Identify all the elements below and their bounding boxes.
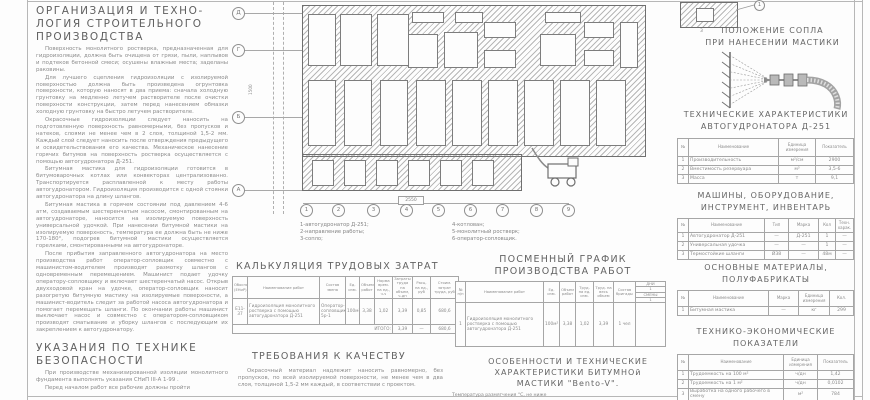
tech-char-row: 3 Масса т 9,1 [678, 175, 854, 184]
tech-char-cell: 1 [678, 157, 689, 166]
plan-opening [408, 34, 438, 68]
calc-total-value: — [413, 325, 431, 334]
tech-econ-cell: 2 [678, 380, 689, 389]
machines-cell: Универсальная удочка [689, 242, 765, 251]
axis-letter-circle: Г [232, 44, 245, 57]
machines-cell: Автогудронатор Д-251 [689, 233, 765, 242]
tech-char-cell: 3,5-6 [816, 166, 854, 175]
machines-cell: Термостойкие шланги [689, 251, 765, 260]
plan-opening [584, 50, 614, 66]
schedule-cell: 3,39 [594, 303, 614, 347]
calc-title: КАЛЬКУЛЯЦИЯ ТРУДОВЫХ ЗАТРАТ [236, 261, 439, 273]
schedule-cell: Гидроизоляция монолитного ростверка с по… [466, 303, 544, 347]
legend-item: 1-автогудронатор Д-251; [300, 222, 369, 229]
plan-opening [344, 160, 366, 186]
axis-letter-circle: Д [232, 7, 245, 20]
materials-header: Кол. [830, 291, 854, 307]
plan-opening [416, 80, 446, 146]
tech-char-row: 1 Производительность м²/см 2900 [678, 157, 854, 166]
machines-row: 1 Автогудронатор Д-251 — Д-251 1 — [678, 233, 854, 242]
calc-cell: 3,39 [393, 299, 413, 325]
plan-opening [308, 14, 336, 66]
calc-data-row: Е11-37 Гидроизоляция монолитного роствер… [233, 299, 459, 325]
tech-econ-cell: 3 [678, 389, 689, 400]
calc-header: Ед. изм. [346, 277, 360, 299]
axis-letter-circle: Б [232, 111, 245, 124]
schedule-header: Труд. на весь объем [594, 282, 614, 303]
dimension-label: 2550 [398, 196, 424, 205]
axis-number-circle: 7 [496, 204, 509, 217]
calc-total-row: ИТОГО: 3,39 — 680,6 [233, 325, 459, 334]
tech-econ-header: Показатель [818, 355, 854, 371]
plan-opening [376, 160, 398, 186]
machines-cell: 1 [819, 242, 836, 251]
machines-cell: 2 [678, 242, 689, 251]
quality-title: ТРЕБОВАНИЯ К КАЧЕСТВУ [252, 351, 406, 363]
machines-header: Тип [765, 219, 789, 233]
schedule-data-row: 1 Гидроизоляция монолитного ростверка с … [456, 303, 666, 347]
org-paragraph: Окрасочные гидроизоляции следует наносит… [36, 117, 228, 165]
axis-number-circle: 5 [432, 204, 445, 217]
tech-char-header-row: № Наименование Единица измерения Показат… [678, 139, 854, 157]
legend-item: 3-сопло; [300, 236, 369, 243]
plan-opening [380, 80, 408, 146]
org-title-line2: ЛОГИЯ СТРОИТЕЛЬНОГО [36, 18, 203, 31]
tech-econ-cell: ч/дн [784, 380, 818, 389]
tech-char-header: Единица измерения [779, 139, 816, 157]
mastic-title-line2: ХАРАКТЕРИСТИКИ БИТУМНОй [468, 368, 668, 379]
calc-header: Расц. на ед., руб [413, 277, 431, 299]
schedule-header: Ед. изм. [544, 282, 560, 303]
frame-right-outer-line [862, 0, 863, 400]
axis-number-circle: 1 [300, 204, 313, 217]
materials-cell: кг [799, 307, 830, 316]
machines-cell: 48м [819, 251, 836, 260]
nozzle-spray-drawing [700, 50, 850, 110]
calc-total-value: 3,39 [393, 325, 413, 334]
tech-char-title-line2: АВТОГУДРОНАТОРА Д-251 [678, 122, 854, 133]
calc-cell: 3,38 [360, 299, 375, 325]
schedule-gantt-cell [636, 303, 666, 347]
plan-opening [377, 14, 409, 66]
tech-econ-header-row: № Наименование Единица измерения Показат… [678, 355, 854, 371]
materials-title-line2: ПОЛУФАБРИКАТЫ [678, 275, 854, 286]
schedule-title-line1: ПОСМЕННЫЙ ГРАФИК [463, 254, 663, 266]
plan-opening [560, 80, 590, 146]
calc-header-row: Обоснование (ЕНиР) Наименование работ Со… [233, 277, 459, 299]
safety-paragraph: При производстве механизированной изоляц… [36, 370, 228, 384]
machines-cell: — [789, 251, 819, 260]
section-detail-opening [696, 8, 714, 22]
machines-cell: — [765, 242, 789, 251]
plan-opening [596, 80, 626, 146]
org-body: Поверхность монолитного ростверка, предн… [36, 46, 228, 340]
machines-cell: — [836, 233, 854, 242]
materials-table: № Наименование Марка Единица измерения К… [677, 290, 854, 316]
machines-header: Кол [819, 219, 836, 233]
machines-header-row: № Наименование Тип Марка Кол Техн. харак… [678, 219, 854, 233]
tech-char-cell: Масса [689, 175, 779, 184]
plan-opening [540, 34, 576, 66]
tech-char-cell: 2 [678, 166, 689, 175]
drawing-sheet: ОРГАНИЗАЦИЯ И ТЕХНО- ЛОГИЯ СТРОИТЕЛЬНОГО… [0, 0, 870, 400]
tech-econ-title-line2: ПОКАЗАТЕЛИ [678, 339, 854, 350]
org-paragraph: Для лучшего сцепления гидроизоляции с из… [36, 75, 228, 116]
calc-cell: 100м² [346, 299, 360, 325]
schedule-cell: 3,38 [560, 303, 576, 347]
plan-opening [344, 80, 372, 146]
org-paragraph: После прибытия заправленного автогудрона… [36, 251, 228, 334]
plan-opening [412, 12, 444, 23]
machines-header: № [678, 219, 689, 233]
plan-opening [488, 80, 518, 146]
schedule-cell: 1 чел [614, 303, 636, 347]
schedule-days-header: ДНИ 1 СМЕНЫ 1 [636, 282, 666, 303]
axis-number-circle: 3 [367, 204, 380, 217]
materials-header: Марка [769, 291, 799, 307]
plan-opening [408, 160, 430, 186]
machines-row: 2 Универсальная удочка — — 1 — [678, 242, 854, 251]
calc-cell: 1,02 [375, 299, 393, 325]
safety-title-line1: УКАЗАНИЯ ПО ТЕХНИКЕ [36, 342, 197, 355]
mastic-title-line3: МАСТИКИ "Вento-V". [468, 379, 668, 390]
schedule-header: Наименование работ [466, 282, 544, 303]
machines-cell: 1 [819, 233, 836, 242]
plan-opening [308, 80, 336, 146]
quality-body: Окрасочный материал надлежит наносить ра… [238, 368, 443, 396]
materials-cell: 299 [830, 307, 854, 316]
legend-item: 5-монолитный ростверк; [452, 229, 520, 236]
materials-header: Единица измерения [799, 291, 830, 307]
tech-char-header: Наименование [689, 139, 779, 157]
excavation-dashed-line [273, 2, 274, 214]
calc-header: Затраты труда на объем, ч-дн [393, 277, 413, 299]
detail-label-circle: 1 [754, 0, 765, 11]
schedule-cell: 1 [456, 303, 466, 347]
safety-body: При производстве механизированной изоляц… [36, 370, 228, 396]
plan-opening [584, 22, 614, 38]
legend-right: 4-котлован; 5-монолитный ростверк; 6-опе… [452, 222, 520, 244]
schedule-header: № п/п [456, 282, 466, 303]
schedule-header: Объем работ [560, 282, 576, 303]
legend-item: 2-направление работы; [300, 229, 369, 236]
plan-opening [340, 14, 372, 66]
frame-right-line [854, 0, 855, 400]
schedule-header-row: № п/п Наименование работ Ед. изм. Объем … [456, 282, 666, 303]
tech-econ-row: 2 Трудоемкость на 1 м² ч/дн 0,0102 [678, 380, 854, 389]
materials-row: 1 Битумная мастика — кг 299 [678, 307, 854, 316]
schedule-table: № п/п Наименование работ Ед. изм. Объем … [455, 281, 666, 347]
tech-econ-header: Единица измерения [784, 355, 818, 371]
plan-opening [545, 12, 581, 23]
calc-cell: 0,85 [413, 299, 431, 325]
axis-line [244, 190, 302, 191]
tech-char-cell: 2900 [816, 157, 854, 166]
tech-char-cell: м³ [779, 166, 816, 175]
tech-econ-cell: м² [784, 389, 818, 400]
tech-char-row: 2 Вместимость резервуара м³ 3,5-6 [678, 166, 854, 175]
axis-letter-circle: А [232, 184, 245, 197]
machines-cell: — [836, 251, 854, 260]
safety-title-line2: БЕЗОПАСНОСТИ [36, 355, 144, 368]
materials-header: Наименование [689, 291, 769, 307]
axis-line [244, 117, 302, 118]
excavation-dashed-line [283, 2, 284, 214]
tech-char-table: № Наименование Единица измерения Показат… [677, 138, 854, 184]
machines-cell: Д-251 [789, 233, 819, 242]
machines-table: № Наименование Тип Марка Кол Техн. харак… [677, 218, 854, 260]
tech-char-cell: т [779, 175, 816, 184]
safety-paragraph: Перед началом работ все рабочие должны п… [36, 385, 228, 392]
machines-header: Наименование [689, 219, 765, 233]
tech-char-header: № [678, 139, 689, 157]
machines-title-line2: ИНСТРУМЕНТ, ИНВЕНТАРЬ [678, 203, 854, 214]
mastic-title-line1: ОСОБЕННОСТИ И ТЕХНИЧЕСКИЕ [468, 357, 668, 368]
materials-header: № [678, 291, 689, 307]
axis-number-circle: 2 [332, 204, 345, 217]
tech-econ-cell: Трудоемкость на 1 м² [689, 380, 784, 389]
mastic-first-line: Температура размягчения °С, не ниже [452, 392, 546, 399]
calc-header: Норма врем. на ед., ч-ч [375, 277, 393, 299]
materials-header-row: № Наименование Марка Единица измерения К… [678, 291, 854, 307]
machines-cell: — [836, 242, 854, 251]
calc-header: Обоснование (ЕНиР) [233, 277, 248, 299]
nozzle-title-line2: ПРИ НАНЕСЕНИИ МАСТИКИ [690, 38, 855, 49]
tech-econ-table: № Наименование Единица измерения Показат… [677, 354, 854, 400]
machines-cell: 1 [678, 233, 689, 242]
machines-row: 3 Термостойкие шланги Ø38 — 48м — [678, 251, 854, 260]
axis-number-circle: 4 [400, 204, 413, 217]
schedule-header: Труд. на ед. изм. [576, 282, 594, 303]
tech-econ-cell: 0,0102 [818, 380, 854, 389]
materials-title-line1: ОСНОВНЫЕ МАТЕРИАЛЫ, [678, 263, 854, 274]
tech-econ-cell: ч/дн [784, 371, 818, 380]
frame-left-line [27, 0, 28, 400]
machines-cell: 3 [678, 251, 689, 260]
axis-number-circle: 8 [530, 204, 543, 217]
schedule-title-line2: ПРОИЗВОДСТВА РАБОТ [463, 266, 663, 278]
machines-header: Техн. харак. [836, 219, 854, 233]
plan-opening [472, 160, 494, 186]
tech-econ-cell: 784 [818, 389, 854, 400]
tech-econ-cell: 1,42 [818, 371, 854, 380]
tech-char-header: Показатель [816, 139, 854, 157]
org-title-line1: ОРГАНИЗАЦИЯ И ТЕХНО- [36, 5, 204, 18]
tech-char-cell: 3 [678, 175, 689, 184]
axis-line [244, 13, 302, 14]
quality-text: Окрасочный материал надлежит наносить ра… [238, 368, 443, 389]
machines-title-line1: МАШИНЫ, ОБОРУДОВАНИЕ, [678, 191, 854, 202]
plan-opening [484, 50, 516, 68]
plan-opening [440, 160, 462, 186]
legend-item: 6-оператор-сопловщик. [452, 236, 520, 243]
machines-cell: — [789, 242, 819, 251]
calc-cell: Гидроизоляция монолитного ростверка с по… [248, 299, 320, 325]
machines-cell: Ø38 [765, 251, 789, 260]
plan-opening [484, 22, 516, 38]
calc-header: Состав звена [320, 277, 346, 299]
axis-number-circle: 6 [464, 204, 477, 217]
calc-cell: Е11-37 [233, 299, 248, 325]
materials-cell: Битумная мастика [689, 307, 769, 316]
materials-cell: 1 [678, 307, 689, 316]
calc-header: Объем работ [360, 277, 375, 299]
plan-opening [452, 80, 482, 146]
calc-cell: Оператор-сопловщик 5р-1 [320, 299, 346, 325]
plan-opening [312, 160, 334, 186]
nozzle-title-line1: ПОЛОЖЕНИЕ СОПЛА [690, 26, 855, 37]
tech-econ-header: Наименование [689, 355, 784, 371]
materials-cell: — [769, 307, 799, 316]
legend-left: 1-автогудронатор Д-251; 2-направление ра… [300, 222, 369, 244]
axis-line [244, 50, 302, 51]
calc-header: Наименование работ [248, 277, 320, 299]
tech-char-cell: м²/см [779, 157, 816, 166]
plan-opening [524, 80, 554, 146]
plan-opening [455, 12, 483, 23]
sprayer-machine-icon [528, 146, 586, 194]
org-title-line3: ПРОИЗВОДСТВА [36, 31, 144, 44]
tech-econ-cell: 1 [678, 371, 689, 380]
tech-econ-header: № [678, 355, 689, 371]
tech-econ-title-line1: ТЕХНИКО-ЭКОНОМИЧЕСКИЕ [678, 327, 854, 338]
axis-number-circle: 9 [562, 204, 575, 217]
tech-econ-row: 1 Трудоемкость на 100 м² ч/дн 1,42 [678, 371, 854, 380]
tech-econ-row: 3 Выработка на одного рабочего в смену м… [678, 389, 854, 400]
plan-opening [444, 32, 478, 68]
machines-header: Марка [789, 219, 819, 233]
org-paragraph: Поверхность монолитного ростверка, предн… [36, 46, 228, 74]
schedule-cell: 1,02 [576, 303, 594, 347]
machines-cell: — [765, 233, 789, 242]
tech-econ-cell: Выработка на одного рабочего в смену [689, 389, 784, 400]
vertical-dimension-label: 1500 [248, 84, 253, 95]
tech-char-cell: 9,1 [816, 175, 854, 184]
tech-char-cell: Вместимость резервуара [689, 166, 779, 175]
plan-opening [620, 22, 638, 68]
org-paragraph: Битумная мастика в горячем состоянии под… [36, 202, 228, 250]
tech-char-cell: Производительность [689, 157, 779, 166]
tech-econ-cell: Трудоемкость на 100 м² [689, 371, 784, 380]
tech-char-title-line1: ТЕХНИЧЕСКИЕ ХАРАКТЕРИСТИКИ [678, 110, 854, 121]
schedule-header: Состав бригады [614, 282, 636, 303]
calc-table: Обоснование (ЕНиР) Наименование работ Со… [232, 276, 459, 334]
schedule-cell: 100м² [544, 303, 560, 347]
shift-value: 1 [636, 298, 665, 302]
calc-total-label: ИТОГО: [233, 325, 393, 334]
org-paragraph: Битумная мастика для гидроизоляции готов… [36, 166, 228, 201]
